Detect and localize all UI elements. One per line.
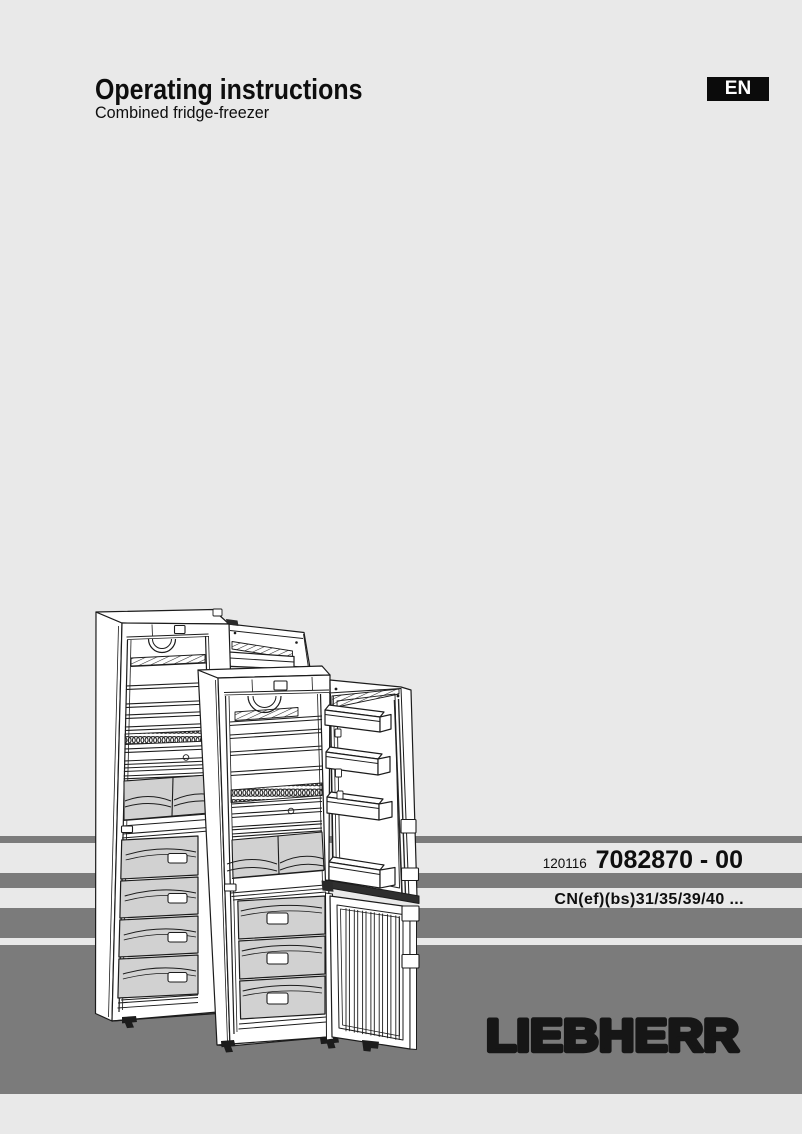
svg-text:LIEBHERR: LIEBHERR bbox=[486, 1010, 739, 1061]
